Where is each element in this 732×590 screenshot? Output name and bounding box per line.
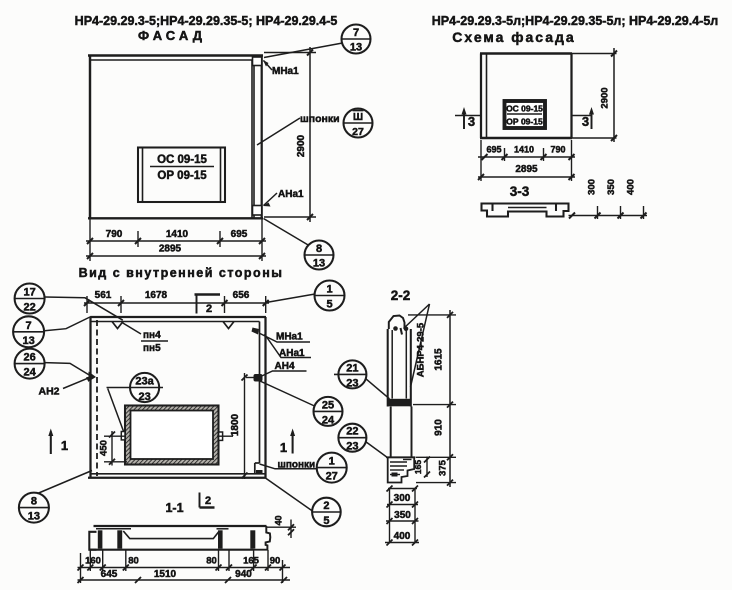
svg-text:13: 13 xyxy=(350,42,362,54)
svg-text:2895: 2895 xyxy=(159,244,182,255)
svg-text:пн4: пн4 xyxy=(143,330,161,341)
svg-text:1: 1 xyxy=(326,284,332,296)
svg-text:350: 350 xyxy=(394,510,411,521)
svg-text:350: 350 xyxy=(606,179,617,195)
svg-text:7: 7 xyxy=(353,27,359,39)
svg-text:80: 80 xyxy=(206,556,217,567)
svg-text:7: 7 xyxy=(26,320,32,332)
svg-text:80: 80 xyxy=(128,556,139,567)
svg-text:656: 656 xyxy=(233,290,250,301)
svg-text:23а: 23а xyxy=(135,376,154,388)
svg-text:2900: 2900 xyxy=(600,87,611,108)
svg-text:НР4-29.29.3-5;НР4-29.29.35-5;: НР4-29.29.3-5;НР4-29.29.35-5; НР4-29.29.… xyxy=(75,14,338,28)
svg-text:ОР 09-15: ОР 09-15 xyxy=(157,170,207,182)
svg-text:27: 27 xyxy=(326,471,338,483)
svg-text:90: 90 xyxy=(270,556,281,567)
svg-text:165: 165 xyxy=(243,556,260,567)
svg-text:3-3: 3-3 xyxy=(510,184,530,199)
svg-text:561: 561 xyxy=(95,290,112,301)
svg-text:300: 300 xyxy=(394,493,411,504)
svg-text:2-2: 2-2 xyxy=(391,288,411,303)
svg-text:Схема фасада: Схема фасада xyxy=(452,29,575,45)
svg-text:1510: 1510 xyxy=(154,569,177,580)
svg-text:23: 23 xyxy=(346,377,358,389)
svg-text:695: 695 xyxy=(231,229,248,240)
svg-text:790: 790 xyxy=(106,229,123,240)
svg-text:НР4-29.29.3-5л;НР4-29.29.35-5л: НР4-29.29.3-5л;НР4-29.29.35-5л; НР4-29.2… xyxy=(432,14,719,28)
svg-text:МНа1: МНа1 xyxy=(276,332,303,343)
svg-text:21: 21 xyxy=(346,362,358,374)
svg-text:ФАСАД: ФАСАД xyxy=(138,28,206,43)
svg-text:23: 23 xyxy=(138,391,150,403)
svg-text:2: 2 xyxy=(206,303,212,315)
svg-text:40: 40 xyxy=(274,515,284,525)
svg-text:27: 27 xyxy=(352,126,364,138)
svg-text:1615: 1615 xyxy=(434,348,445,371)
svg-text:2900: 2900 xyxy=(296,134,307,157)
svg-text:1: 1 xyxy=(280,440,287,455)
svg-text:1: 1 xyxy=(61,438,68,453)
svg-text:5: 5 xyxy=(323,515,329,527)
svg-text:165: 165 xyxy=(413,460,423,474)
svg-text:Ш: Ш xyxy=(353,112,363,123)
svg-text:25: 25 xyxy=(322,399,334,411)
svg-text:шпонки: шпонки xyxy=(300,113,340,125)
svg-text:160: 160 xyxy=(85,556,101,567)
svg-text:5: 5 xyxy=(326,299,332,311)
svg-text:940: 940 xyxy=(235,569,252,580)
svg-text:17: 17 xyxy=(23,287,35,299)
svg-text:1800: 1800 xyxy=(230,413,241,436)
svg-text:13: 13 xyxy=(313,258,325,270)
svg-text:400: 400 xyxy=(394,531,411,542)
svg-text:2: 2 xyxy=(205,495,211,507)
svg-text:450: 450 xyxy=(99,440,110,456)
svg-text:8: 8 xyxy=(316,243,322,255)
svg-text:13: 13 xyxy=(28,511,40,523)
svg-text:ОС 09-15: ОС 09-15 xyxy=(157,154,207,166)
svg-text:пн5: пн5 xyxy=(143,343,161,354)
svg-text:1410: 1410 xyxy=(166,229,189,240)
svg-text:ОР 09-15: ОР 09-15 xyxy=(506,117,543,127)
svg-text:8: 8 xyxy=(31,496,37,508)
svg-text:1678: 1678 xyxy=(145,290,168,301)
svg-text:910: 910 xyxy=(434,419,445,436)
svg-text:Вид с внутренней стороны: Вид с внутренней стороны xyxy=(79,266,284,280)
svg-text:1-1: 1-1 xyxy=(165,501,183,515)
svg-text:2895: 2895 xyxy=(515,164,538,175)
svg-text:23: 23 xyxy=(346,441,358,453)
svg-text:645: 645 xyxy=(101,569,118,580)
svg-text:22: 22 xyxy=(346,426,358,438)
svg-text:АНа1: АНа1 xyxy=(278,189,304,200)
svg-text:АН2: АН2 xyxy=(39,386,60,398)
svg-text:790: 790 xyxy=(550,145,565,155)
svg-text:13: 13 xyxy=(22,335,34,347)
svg-text:24: 24 xyxy=(23,367,36,379)
svg-text:695: 695 xyxy=(486,145,501,155)
svg-text:2: 2 xyxy=(323,500,329,512)
svg-text:МНа1: МНа1 xyxy=(272,66,299,77)
svg-text:300: 300 xyxy=(587,179,598,195)
svg-text:22: 22 xyxy=(23,302,35,314)
svg-text:24: 24 xyxy=(322,414,335,426)
svg-text:375: 375 xyxy=(438,459,449,476)
svg-text:АБНР4-29-5: АБНР4-29-5 xyxy=(416,322,427,377)
svg-text:1: 1 xyxy=(329,456,335,468)
svg-text:1410: 1410 xyxy=(514,145,534,155)
svg-text:400: 400 xyxy=(626,179,637,195)
svg-text:ОС 09-15: ОС 09-15 xyxy=(506,104,543,114)
svg-text:26: 26 xyxy=(23,352,35,364)
